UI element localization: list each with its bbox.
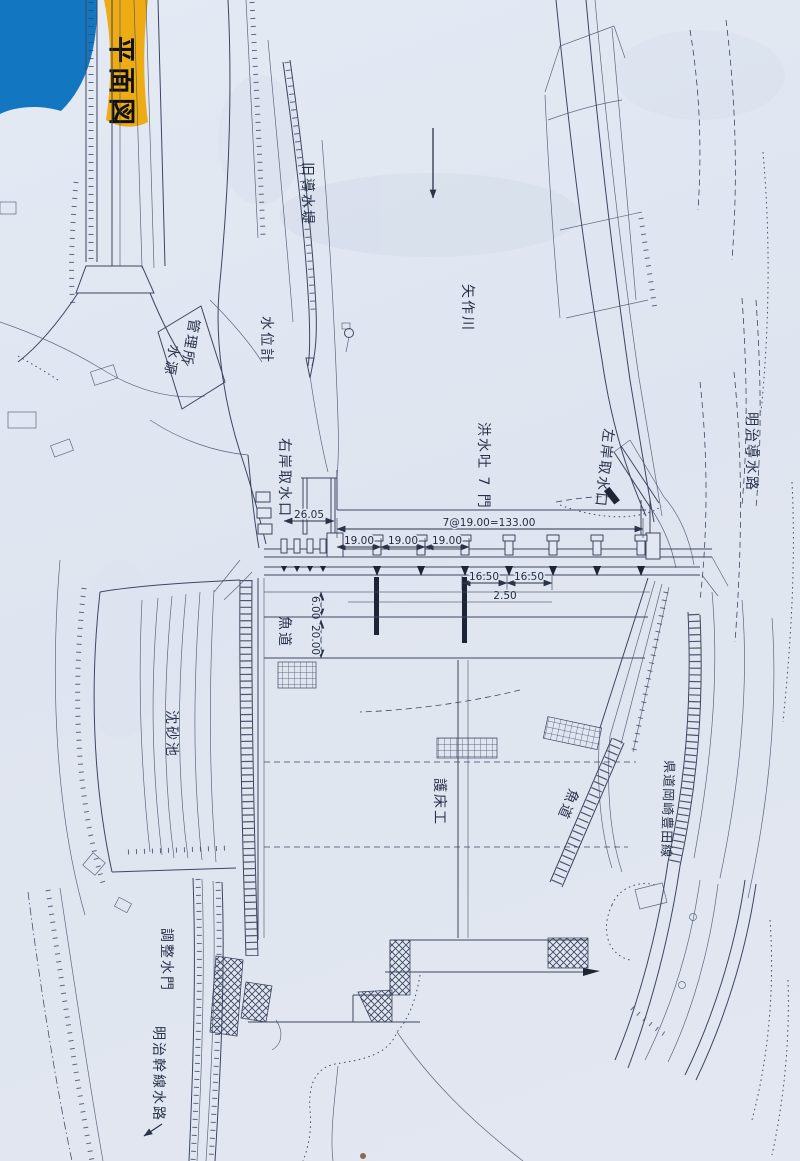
label-fishway-right: 魚道	[554, 786, 581, 822]
dim-gate-span-1: 19.00	[344, 535, 374, 547]
plan-drawing: 平面図	[0, 0, 800, 1161]
end-sill	[248, 938, 600, 1161]
label-flood-gates: 洪水吐 7 門	[475, 422, 491, 510]
water-level-gauge-symbol	[342, 323, 354, 352]
corner-tag: 平面図	[0, 0, 148, 129]
blue-corner-shape	[0, 0, 97, 114]
right-embankment	[599, 578, 670, 872]
label-pref-road: 県道岡崎豊田線	[658, 760, 677, 859]
dim-gate-span-2: 19.00	[388, 535, 418, 547]
label-bed-protection: 護床工	[431, 778, 447, 826]
dim-gate-span-3: 19.00	[432, 535, 462, 547]
plan-title: 平面図	[105, 36, 136, 129]
dim-apron-1: 6.00	[309, 596, 321, 619]
label-right-bank-intake: 右岸取水口	[276, 438, 292, 518]
prefectural-road	[606, 612, 756, 1080]
dim-total-span: 7@19.00=133.00	[443, 517, 536, 529]
meiji-main-canal-structure	[28, 878, 272, 1161]
canal-flow-arrow-icon	[144, 1124, 162, 1136]
label-water-level-gauge: 水位計	[258, 316, 274, 364]
label-settling-basin: 沈砂池	[163, 710, 179, 758]
label-office-line2: 管理所	[178, 317, 202, 367]
dim-apron-2: 20.00	[309, 625, 321, 655]
dim-intake-width: 26.05	[294, 509, 324, 521]
fishway-left	[240, 580, 258, 956]
label-old-dike: 旧導水堤	[299, 162, 315, 226]
label-regulating-gate: 調整水門	[158, 928, 174, 992]
label-fishway-left: 魚道	[276, 616, 292, 648]
scanned-plan-page: 平面図	[0, 0, 800, 1161]
label-yahagi-river: 矢作川	[459, 284, 475, 332]
right-contours	[690, 20, 793, 1155]
label-meiji-conduit: 明治導水路	[743, 412, 759, 492]
label-meiji-main-canal: 明治幹線水路	[150, 1026, 167, 1122]
dim-half-span-1: 16.50	[469, 571, 499, 583]
meiji-conduit-channel	[556, 298, 760, 517]
dim-half-span-2: 16.50	[514, 571, 544, 583]
